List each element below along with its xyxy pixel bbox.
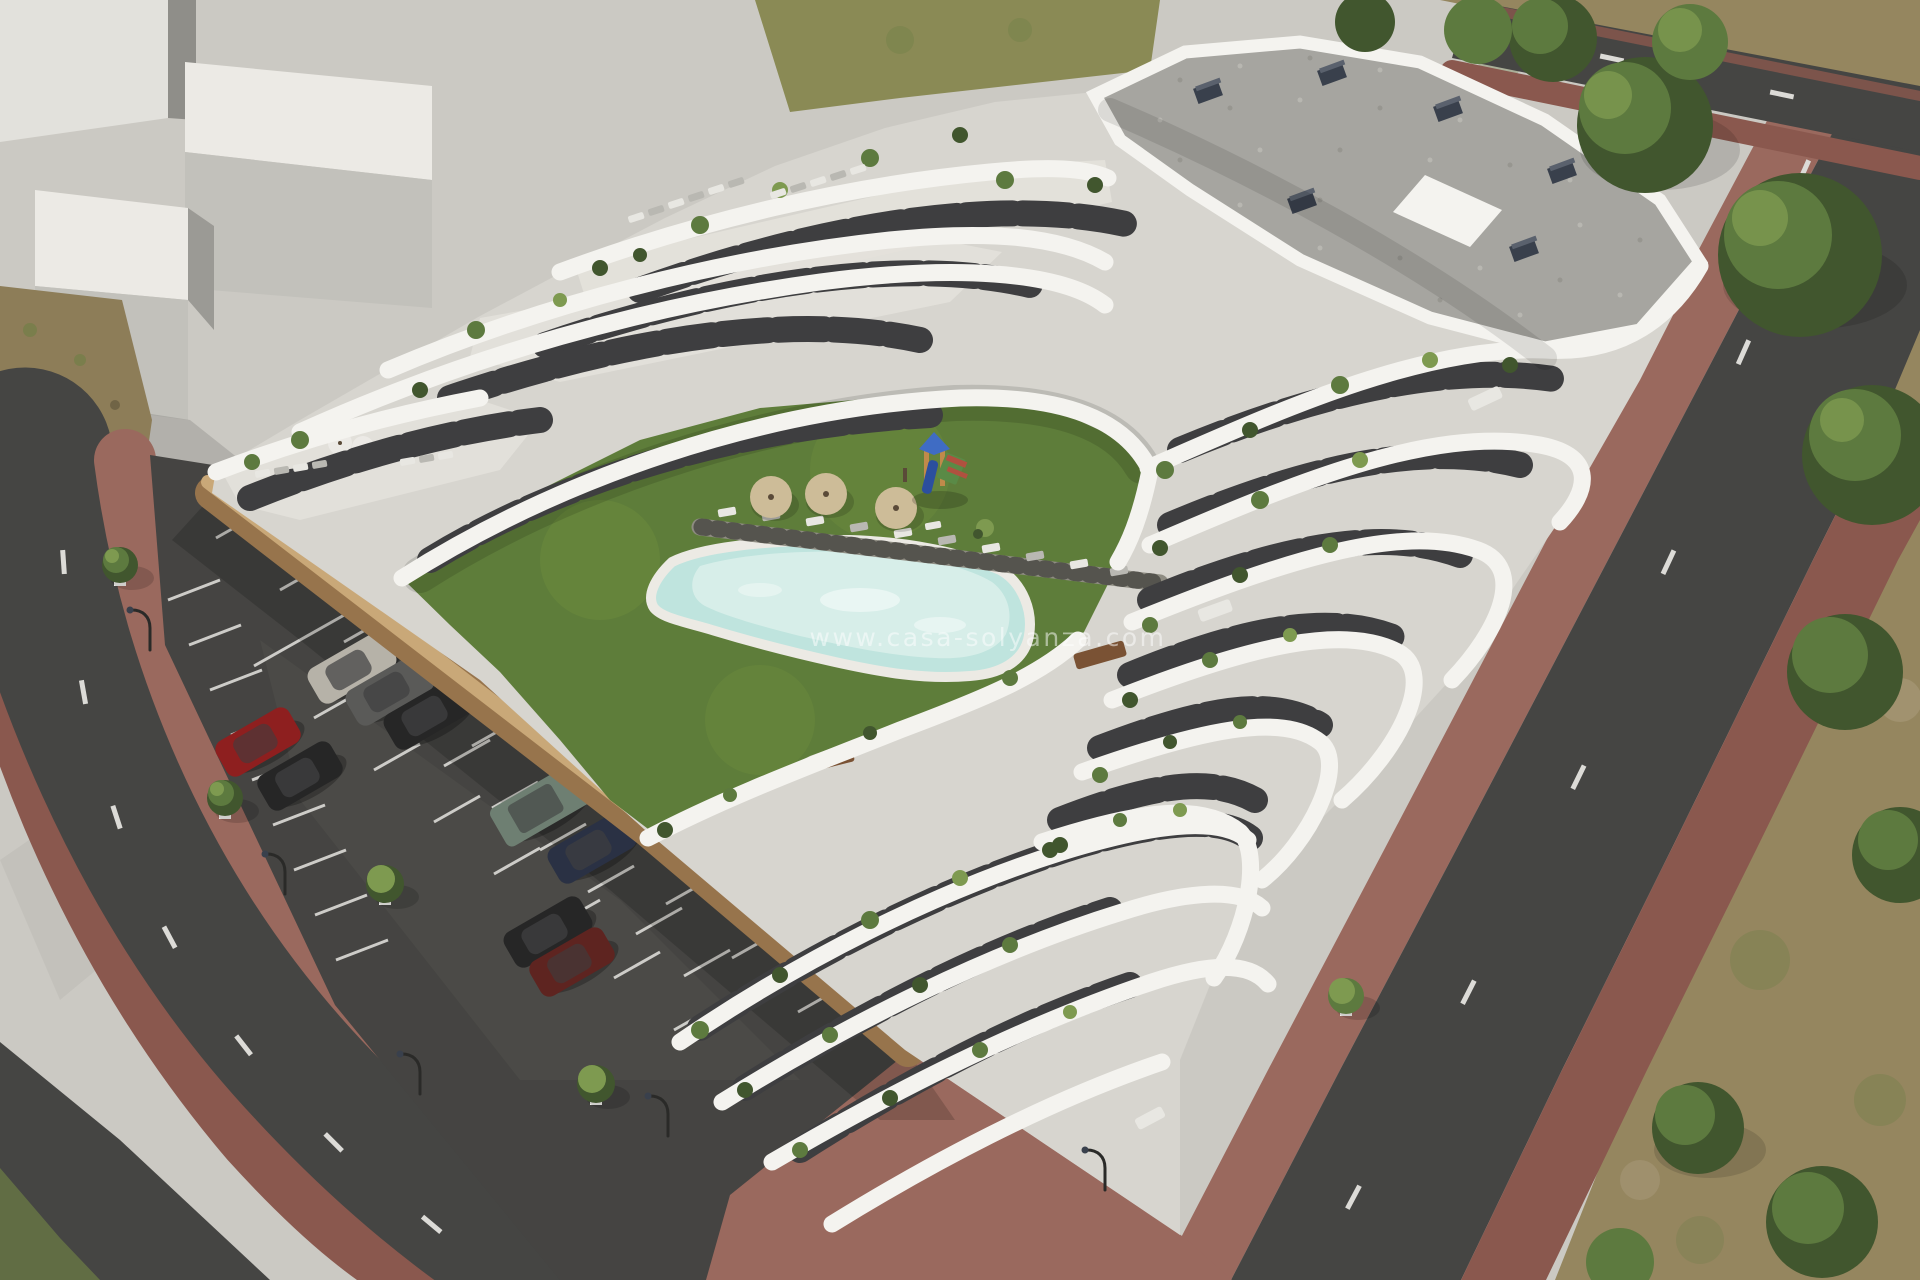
block-wall — [0, 0, 168, 142]
tree-cluster — [1766, 1166, 1878, 1278]
block-top — [35, 190, 188, 300]
watermark: www.casa-solyanza.com — [810, 623, 1167, 652]
tree-cluster — [1787, 614, 1903, 730]
render-canvas: www.casa-solyanza.com — [0, 0, 1920, 1280]
tree-cluster — [1652, 4, 1728, 80]
architectural-render: www.casa-solyanza.com — [0, 0, 1920, 1280]
